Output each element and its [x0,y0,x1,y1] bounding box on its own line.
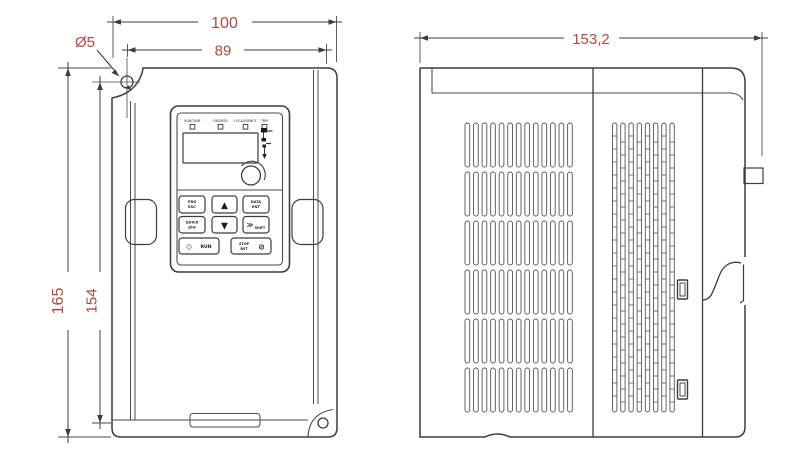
vent-slot [482,123,487,167]
vent-slot [525,368,530,412]
vent-slot [474,270,479,314]
vent-slot [542,319,547,363]
vent-slot [542,221,547,265]
dim-overall-width-label: 100 [211,15,238,32]
vent-slot [474,368,479,412]
cover-clip-top [678,280,688,299]
vent-slot [499,319,504,363]
vent-slot [525,172,530,216]
vent-slot [542,123,547,167]
vent-slot [482,368,487,412]
vent-slot [568,221,573,265]
vent-slot [568,319,573,363]
led-label: RUN/TUNE [184,119,200,123]
vent-slot [559,368,564,412]
vent-slot [542,172,547,216]
front-body-outline [112,68,337,437]
dim-hole-pitch-height: 154 [84,76,112,429]
vent-slot [491,221,496,265]
vent-slot [474,319,479,363]
vent-slot [559,319,564,363]
vent-slot [551,221,556,265]
cover-clip-bottom [678,380,688,399]
led-indicator [243,125,248,130]
vent-slot [474,123,479,167]
vent-slot [482,172,487,216]
vent-slot [621,123,625,412]
led-label: LOCAL/REMOT [234,119,256,123]
vent-slot [551,319,556,363]
vfd-dimension-drawing: RUN/TUNE FWD/REV LOCAL/REMOT TRIP [0,0,800,450]
vent-slot [559,123,564,167]
dim-hole-pitch-width-label: 89 [215,43,232,60]
vent-slot [551,172,556,216]
vent-slot [629,123,633,412]
btn-run-label: RUN [200,244,211,250]
vent-slot [559,172,564,216]
btn-rst-label: RST [240,247,248,251]
btn-shift-label: SHIFT [255,226,266,230]
down-arrow-icon: ▼ [221,222,228,232]
vent-slot [533,270,538,314]
front-view: RUN/TUNE FWD/REV LOCAL/REMOT TRIP [92,58,337,437]
btn-jog-label: JOG [187,226,195,230]
btn-data-label: DATA [251,200,262,204]
vent-slot [499,368,504,412]
vent-slot [482,270,487,314]
vent-slot [491,368,496,412]
up-arrow-icon: ▲ [221,201,228,211]
vent-slot [465,368,470,412]
vent-slot [542,270,547,314]
vent-slot [516,172,521,216]
vent-slot [525,123,530,167]
vent-slot [465,319,470,363]
side-body-upper-outline [420,68,745,257]
led-indicator [190,125,195,130]
heatsink-relief-curve [703,262,742,300]
mount-tab-right [744,168,763,184]
vent-slot [568,368,573,412]
dimension-annotations: 100 89 Ø5 165 [50,15,768,443]
vent-slot [465,221,470,265]
vent-slot [559,221,564,265]
led-indicator [218,125,223,130]
bottom-tab-notch [308,410,333,438]
vent-slot [533,221,538,265]
vent-slot [491,123,496,167]
btn-ent-label: ENT [252,205,260,209]
vent-slot [474,172,479,216]
vent-grid-left [465,123,572,412]
vent-slot [499,221,504,265]
vent-slot [654,123,658,412]
run-diamond-icon: ◇ [186,242,192,251]
lcd-display [183,133,258,163]
side-view [420,68,763,437]
vent-slot [516,270,521,314]
vent-slot [551,123,556,167]
vent-slot [533,172,538,216]
vent-slot [533,319,538,363]
vent-slot [508,172,513,216]
dim-overall-height-label: 165 [50,288,67,315]
vent-slot [662,123,666,412]
vent-slot [568,270,573,314]
vent-slot [568,172,573,216]
stop-circle-icon: ⊘ [258,243,265,252]
vent-slot [533,123,538,167]
led-label: TRIP [260,119,268,123]
vent-slot [508,221,513,265]
vent-slot [499,270,504,314]
dim-hole-pitch-height-label: 154 [84,288,101,313]
vent-slot [516,319,521,363]
vent-slot [482,221,487,265]
led-label: FWD/REV [213,119,228,123]
mount-hole-bottom-right [318,418,328,428]
side-edge-sliver [740,265,744,304]
vent-slot [637,123,641,412]
vent-slot [508,270,513,314]
vent-slot [533,368,538,412]
vent-slot [568,123,573,167]
potentiometer-knob [242,166,261,185]
vent-slot [465,270,470,314]
vent-slot [551,270,556,314]
vent-slot [551,368,556,412]
vent-slot [613,123,617,412]
dim-overall-depth-label: 153,2 [572,31,610,48]
cap-seam [432,93,743,100]
vent-slot [645,123,649,412]
vent-slot [491,172,496,216]
knob-arc [242,161,266,180]
btn-prg-label: PRG [188,200,196,204]
vent-slot [516,368,521,412]
btn-stop-label: STOP [239,242,250,246]
vent-slot [525,270,530,314]
shift-arrows-icon: ≫ [247,221,254,229]
vent-slot [482,319,487,363]
btn-quick-label: QUICK [186,221,199,225]
keypad-inner [177,113,283,265]
vent-slot [491,270,496,314]
btn-run [179,238,219,254]
vent-slot [508,123,513,167]
btn-esc-label: ESC [188,205,196,209]
vent-slot [516,221,521,265]
vent-grid-right [613,123,675,412]
vent-slot [559,270,564,314]
vent-slot [491,319,496,363]
vent-slot [525,221,530,265]
vent-slot [508,319,513,363]
vent-slot [670,123,674,412]
vent-slot [465,172,470,216]
dim-hole-pitch-width: 89 [122,43,332,65]
vent-slot [516,123,521,167]
vent-slot [474,221,479,265]
vent-slot [499,123,504,167]
keypad-panel: RUN/TUNE FWD/REV LOCAL/REMOT TRIP [171,106,290,272]
vent-slot [508,368,513,412]
vent-slot [525,319,530,363]
vent-slot [499,172,504,216]
dim-hole-diameter-label: Ø5 [75,34,95,51]
drawing-canvas: RUN/TUNE FWD/REV LOCAL/REMOT TRIP [0,0,800,450]
btn-stop-reset [231,238,271,254]
dim-overall-height: 165 [50,62,111,443]
vent-slot [542,368,547,412]
vent-slot [465,123,470,167]
unit-indicator-icons [261,128,273,159]
